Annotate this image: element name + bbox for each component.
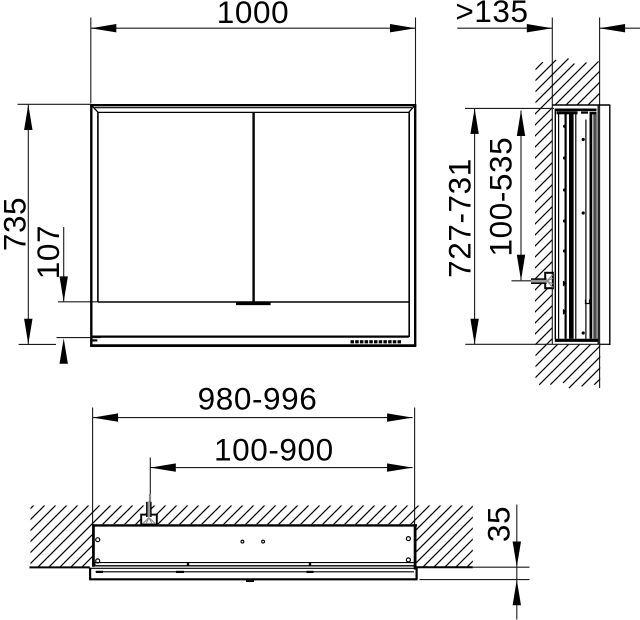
svg-text:35: 35: [481, 506, 517, 542]
svg-text:980-996: 980-996: [198, 380, 318, 416]
svg-text:727-731: 727-731: [442, 158, 478, 278]
svg-text:735: 735: [0, 197, 33, 251]
svg-text:1000: 1000: [217, 0, 289, 30]
svg-text:>135: >135: [455, 0, 528, 29]
svg-text:107: 107: [30, 225, 66, 279]
svg-text:100-900: 100-900: [214, 432, 334, 468]
svg-text:100-535: 100-535: [483, 137, 519, 257]
